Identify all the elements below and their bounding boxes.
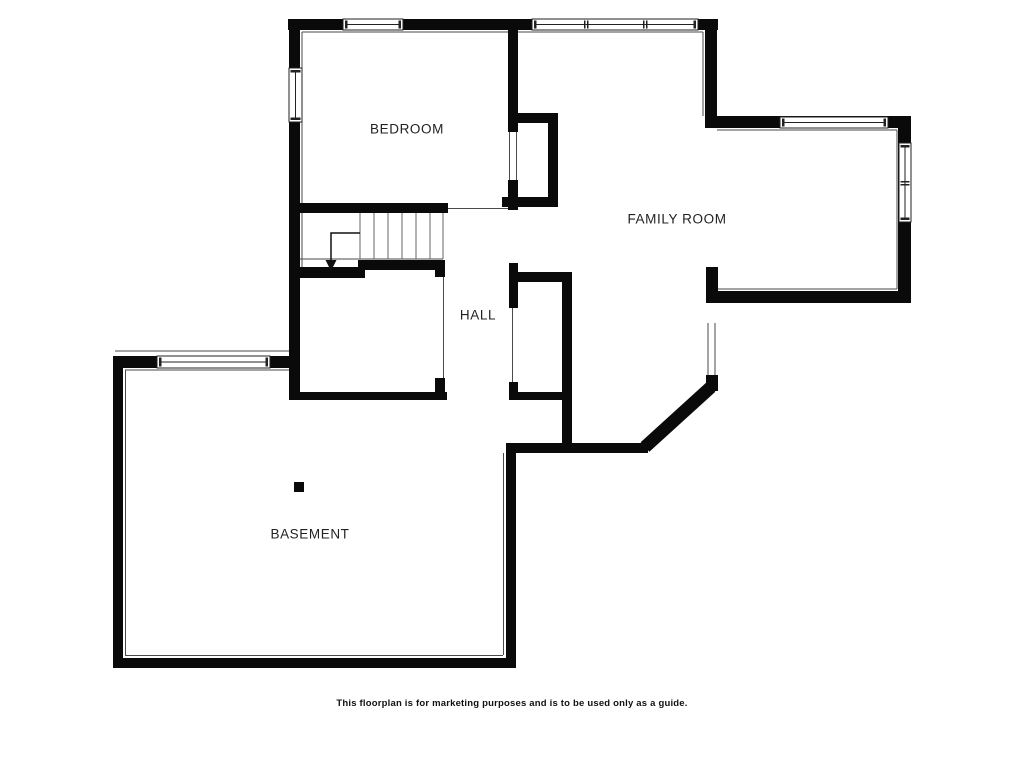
floorplan-drawing (0, 0, 1024, 768)
wall (706, 267, 718, 303)
wall (113, 658, 516, 668)
wall (515, 272, 570, 282)
wall (506, 443, 516, 668)
wall (358, 260, 445, 270)
wall (548, 113, 558, 207)
room-label-family: FAMILY ROOM (627, 212, 726, 227)
floorplan-page: BEDROOMFAMILY ROOMHALLBASEMENT This floo… (0, 0, 1024, 768)
wall (502, 197, 558, 207)
window-end-tick (884, 119, 887, 127)
room-label-bedroom: BEDROOM (370, 122, 444, 137)
wall (289, 267, 365, 278)
window-end-tick (782, 119, 785, 127)
window-end-tick (399, 21, 402, 29)
window-end-tick (291, 118, 301, 121)
wall (509, 392, 562, 400)
room-label-basement: BASEMENT (270, 527, 349, 542)
window-mullion (901, 184, 910, 186)
window-end-tick (534, 21, 537, 29)
wall (705, 19, 717, 127)
wall (562, 272, 572, 453)
window-mullion (643, 21, 645, 29)
window-end-tick (694, 21, 697, 29)
wall (292, 392, 447, 400)
support-post (294, 482, 304, 492)
window-mullion (587, 21, 589, 29)
window-end-tick (291, 70, 301, 73)
window-end-tick (159, 358, 162, 367)
wall (508, 443, 648, 453)
wall (509, 263, 518, 308)
window-mullion (901, 181, 910, 183)
wall (113, 357, 123, 668)
window-end-tick (345, 21, 348, 29)
wall (289, 203, 448, 213)
window-end-tick (901, 218, 910, 221)
window-mullion (584, 21, 586, 29)
window-mullion (646, 21, 648, 29)
window-end-tick (901, 145, 910, 148)
room-label-hall: HALL (460, 308, 496, 323)
window-end-tick (266, 358, 269, 367)
disclaimer-text: This floorplan is for marketing purposes… (0, 698, 1024, 709)
wall (713, 291, 910, 303)
